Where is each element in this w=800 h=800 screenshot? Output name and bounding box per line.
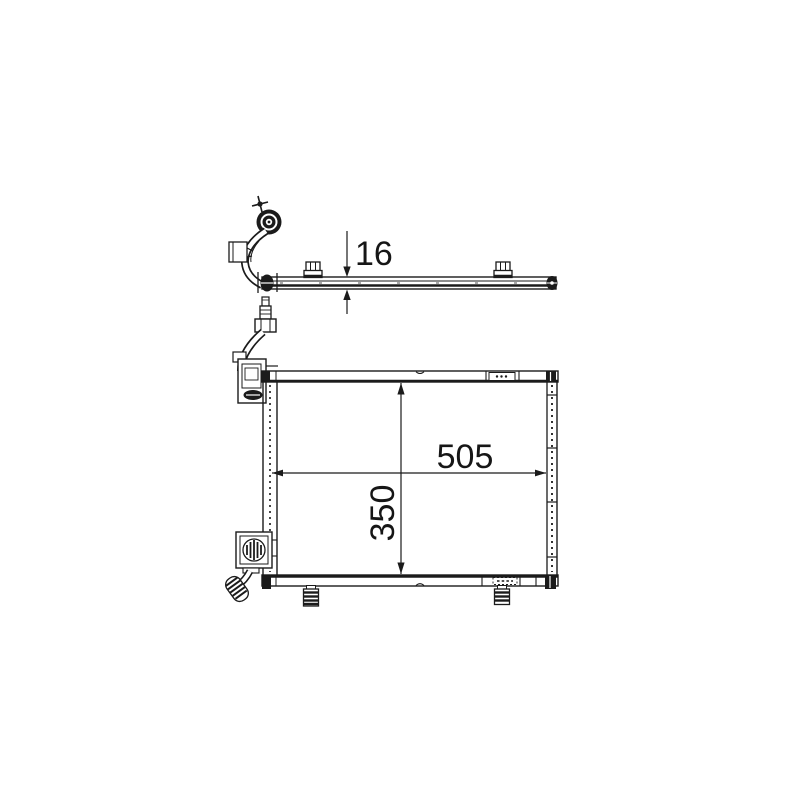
condenser-top-profile — [262, 277, 556, 289]
mounting-foot-left — [304, 586, 319, 607]
top-view — [229, 196, 558, 293]
right-end-cap — [547, 276, 558, 290]
top-rail — [262, 371, 558, 382]
dimension-width-label: 505 — [437, 438, 494, 476]
port-cross-marker — [252, 196, 268, 212]
front-view — [223, 297, 558, 606]
condenser-technical-drawing: 16 — [0, 0, 800, 800]
right-tank — [547, 382, 557, 575]
mounting-foot-right — [495, 586, 510, 605]
technical-drawing-page: 16 — [0, 0, 800, 800]
dimension-height-label: 350 — [364, 485, 402, 542]
mounting-clip-right — [494, 262, 512, 278]
outlet-fitting — [223, 532, 277, 604]
mounting-clip-left — [304, 262, 322, 278]
dimension-thickness-label: 16 — [355, 235, 393, 273]
dimension-thickness: 16 — [343, 231, 393, 314]
dimension-height: 350 — [364, 383, 405, 574]
inlet-fitting — [233, 297, 278, 403]
dimension-width: 505 — [272, 438, 546, 476]
